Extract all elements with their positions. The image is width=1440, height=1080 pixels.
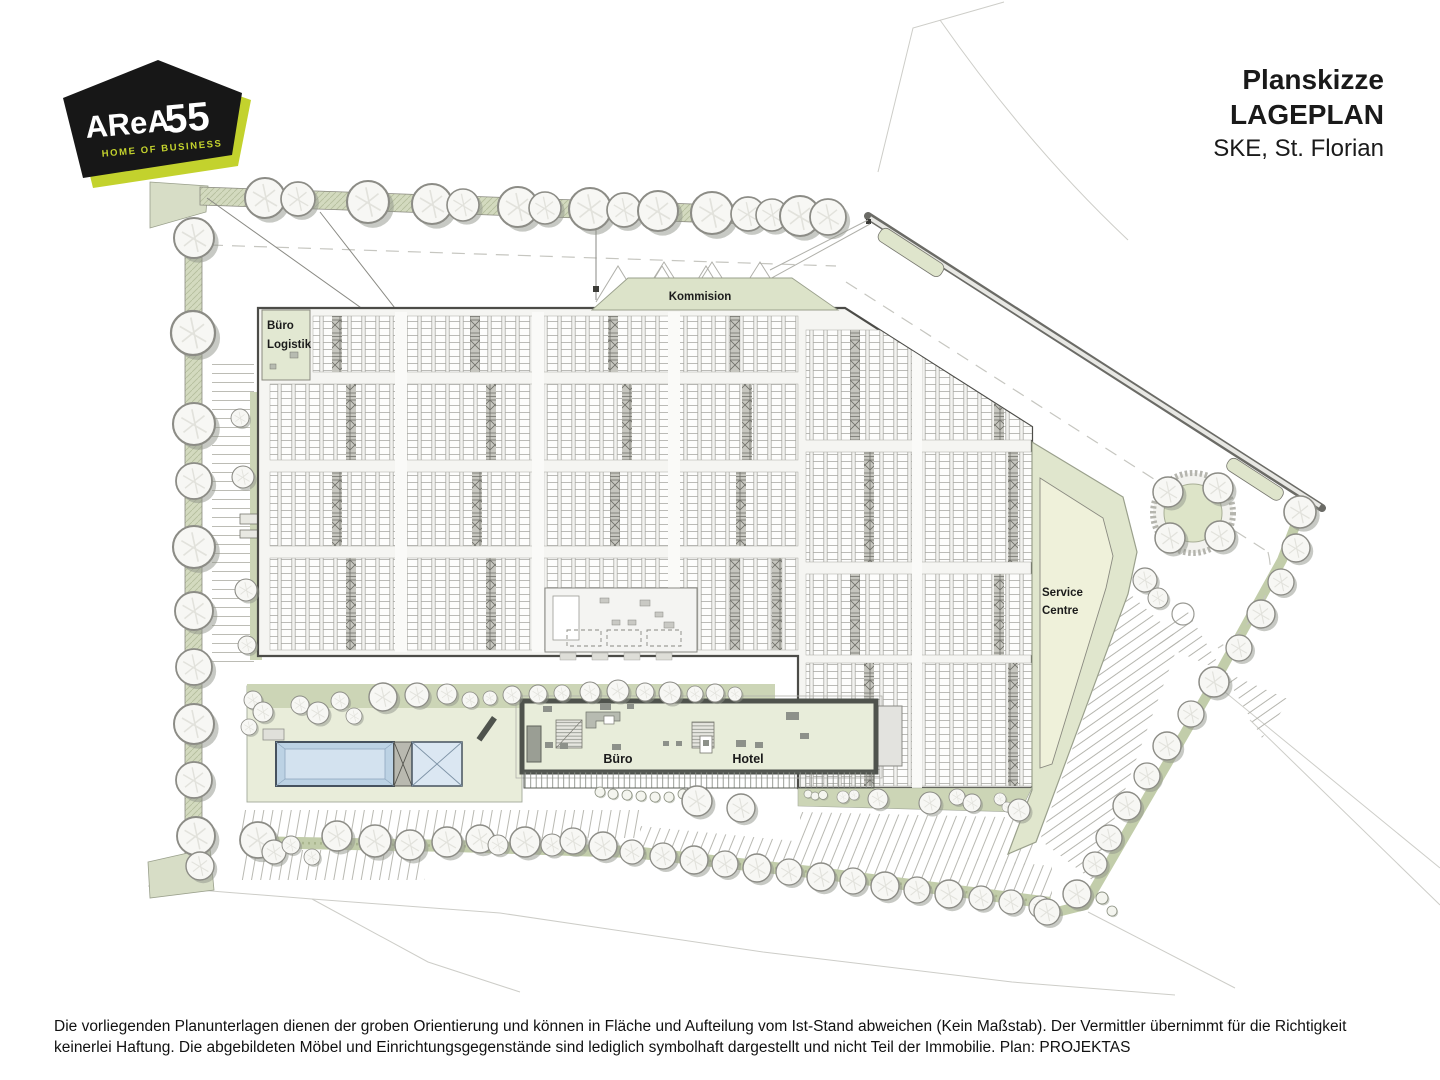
buero-hotel-building	[477, 696, 902, 788]
title-line-3: SKE, St. Florian	[1213, 134, 1384, 164]
title-block: Planskizze LAGEPLAN SKE, St. Florian	[1213, 62, 1384, 164]
label-hotel: Hotel	[732, 752, 763, 766]
logo-brand-text: AReA	[84, 103, 171, 145]
office-area	[545, 588, 697, 660]
area55-logo-icon: AReA 55 HOME OF BUSINESS	[50, 48, 260, 193]
trees-roundabout	[1133, 473, 1238, 610]
title-line-2: LAGEPLAN	[1213, 97, 1384, 132]
label-buero-logistik-2: Logistik	[267, 339, 312, 351]
label-buero-logistik-1: Büro	[267, 320, 294, 332]
label-buero: Büro	[603, 752, 633, 766]
label-kommision: Kommision	[669, 291, 732, 303]
title-line-1: Planskizze	[1213, 62, 1384, 97]
area55-logo: AReA 55 HOME OF BUSINESS	[50, 48, 260, 193]
label-service-2: Centre	[1042, 605, 1078, 617]
pool	[276, 742, 462, 786]
disclaimer-text: Die vorliegenden Planunterlagen dienen d…	[54, 1016, 1392, 1059]
label-service-1: Service	[1042, 587, 1083, 599]
logo-brand-55: 55	[163, 94, 211, 142]
